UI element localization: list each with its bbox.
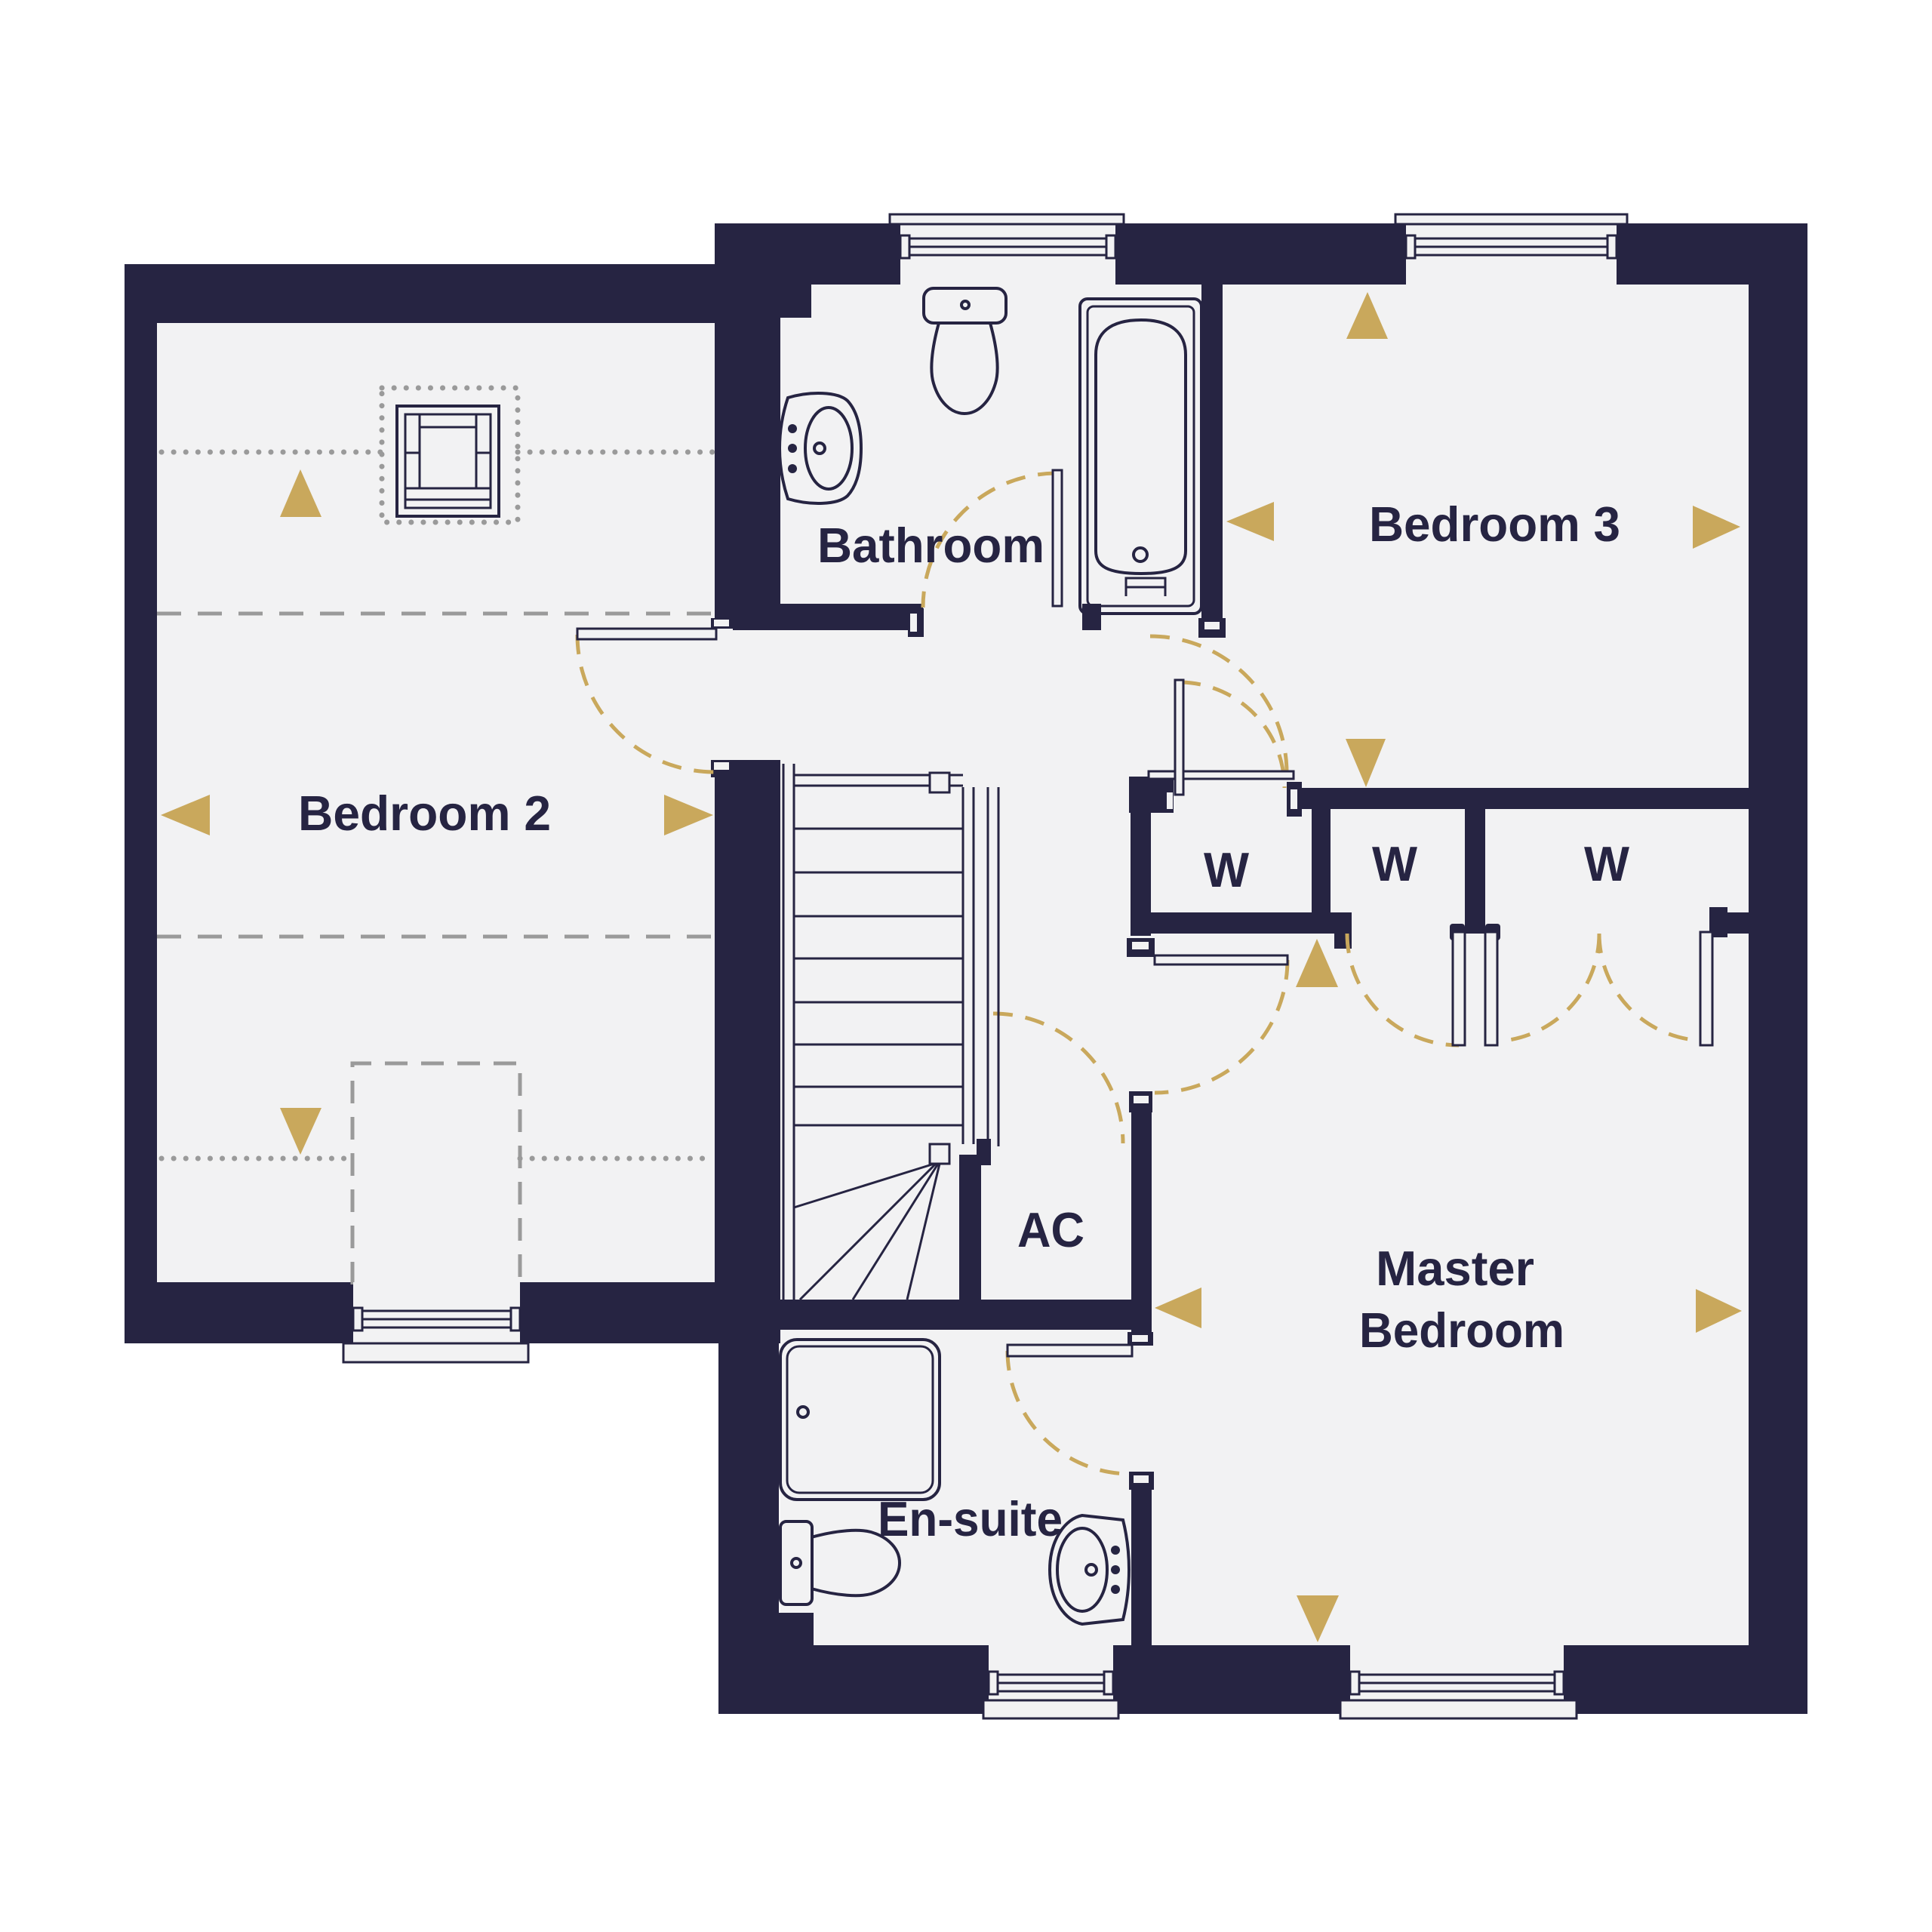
svg-text:Bedroom: Bedroom	[1359, 1303, 1564, 1358]
svg-text:AC: AC	[1017, 1202, 1084, 1257]
svg-text:W: W	[1584, 836, 1630, 891]
svg-text:En-suite: En-suite	[878, 1491, 1063, 1546]
svg-text:Bedroom 2: Bedroom 2	[298, 786, 551, 841]
svg-text:W: W	[1204, 842, 1250, 897]
svg-text:W: W	[1372, 836, 1418, 891]
svg-text:Master: Master	[1376, 1241, 1534, 1296]
svg-text:Bathroom: Bathroom	[817, 518, 1044, 573]
svg-text:Bedroom 3: Bedroom 3	[1369, 497, 1620, 552]
